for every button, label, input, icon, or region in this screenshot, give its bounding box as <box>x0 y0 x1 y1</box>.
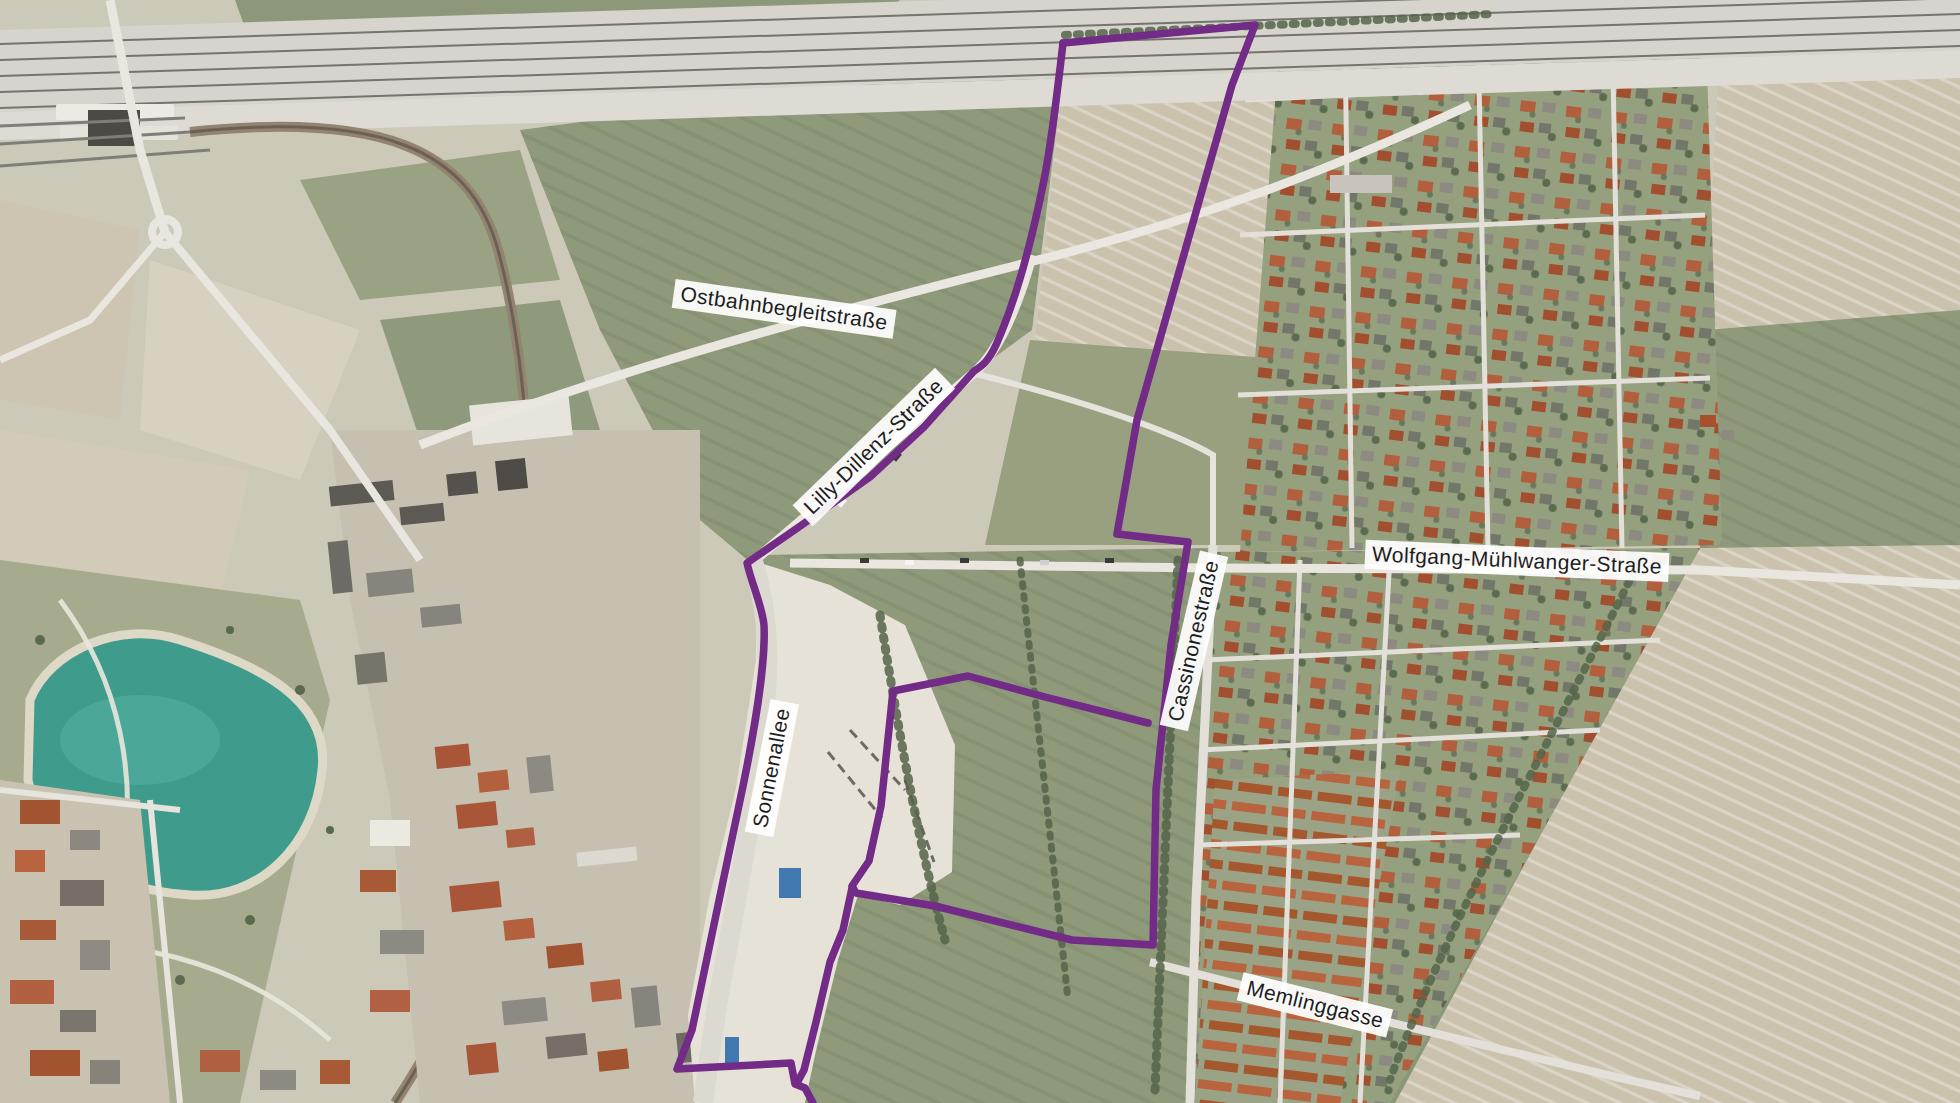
aerial-map[interactable]: Ostbahnbegleitstraße Lilly-Dillenz-Straß… <box>0 0 1960 1103</box>
aerial-imagery <box>0 0 1960 1103</box>
